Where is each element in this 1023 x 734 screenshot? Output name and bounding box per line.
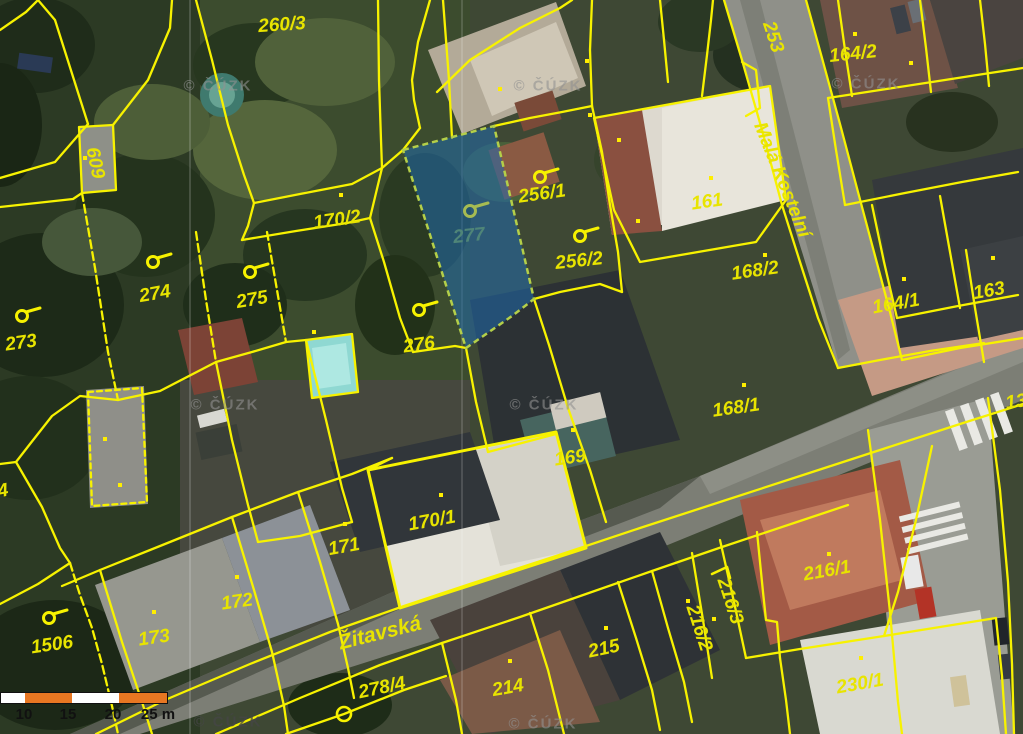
cuzk-watermark: © ČÚZK	[194, 715, 263, 730]
parcel-boundaries	[0, 0, 1023, 734]
building-point-dots	[83, 32, 995, 663]
map-canvas[interactable]: 260/3 253 164/2 609 170/2 256/1 277 256/…	[0, 0, 1023, 734]
scale-bar-segment	[1, 693, 25, 703]
cuzk-watermark: © ČÚZK	[184, 79, 253, 94]
scale-bar-segment	[72, 693, 119, 703]
cuzk-watermark: © ČÚZK	[191, 398, 260, 413]
scale-tick-25m: 25 m	[141, 706, 175, 723]
scale-bar-track	[0, 692, 168, 704]
cuzk-watermark: © ČÚZK	[832, 77, 901, 92]
scale-bar-segment	[25, 693, 72, 703]
cuzk-watermark: © ČÚZK	[510, 398, 579, 413]
cuzk-watermark: © ČÚZK	[509, 717, 578, 732]
cuzk-watermark: © ČÚZK	[514, 79, 583, 94]
scale-tick-10: 10	[16, 706, 33, 723]
scale-tick-15: 15	[60, 706, 77, 723]
scale-tick-20: 20	[105, 706, 122, 723]
scale-bar-segment	[119, 693, 167, 703]
scale-bar: 10 15 20 25 m	[0, 690, 176, 734]
